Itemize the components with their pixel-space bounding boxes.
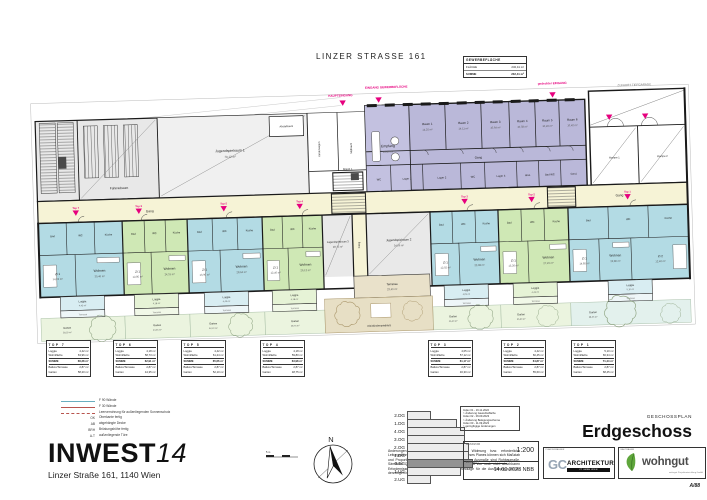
terrace-label: Terrasse [386,282,398,286]
svg-text:26,12 m²: 26,12 m² [300,268,310,272]
stair-label: Stiege 1 [343,167,353,171]
svg-text:12,02 m²: 12,02 m² [440,265,450,269]
dashed-line-icon [61,413,95,414]
svg-text:12,40 m²: 12,40 m² [270,270,280,274]
svg-text:23,98 m²: 23,98 m² [474,263,484,267]
svg-text:46,30 m²: 46,30 m² [449,320,458,323]
svg-text:WC: WC [152,231,157,235]
stair-flight [39,123,57,193]
top-table: TOP 4 Loggia4,18 m² Wohnfläche59,80 m² S… [260,340,305,377]
bike-rack [103,125,119,177]
gc-logo-text: GC [548,457,567,472]
scale-value: 1:200 [464,447,538,454]
svg-text:WC: WC [461,222,466,226]
svg-text:Zi 1: Zi 1 [511,258,516,262]
svg-text:Raum 5: Raum 5 [542,118,553,122]
svg-text:5,10 m²: 5,10 m² [627,288,635,291]
floor-title: Erdgeschoss [512,421,692,442]
svg-text:Küche: Küche [105,232,113,236]
svg-text:Top 1: Top 1 [624,189,631,193]
top-table: TOP 1 Loggia5,10 m² Wohnfläche66,34 m² S… [571,340,616,377]
svg-text:55,60 m²: 55,60 m² [517,318,526,321]
sandbox [371,303,391,318]
communal-block: Abstellraum Stiege 1 Fahrradraum Jugends… [35,112,367,202]
svg-text:44,35 m²: 44,35 m² [153,328,162,331]
svg-text:4,42 m²: 4,42 m² [532,291,540,294]
bike-rack [123,125,139,177]
client-logo: BAUTRÄGER wohngut wohngut Projektentwick… [618,447,706,479]
garage-ramp-block: Rampe 1 Rampe 2 [588,88,687,185]
top-table: TOP 2 Loggia4,42 m² Wohnfläche60,45 m² S… [501,340,546,377]
svg-text:Küche: Küche [309,226,317,230]
room-label: Müllraum [349,143,353,154]
svg-text:Bad: Bad [197,230,202,234]
stair-core [547,187,576,208]
svg-text:Top 3: Top 3 [461,194,468,198]
svg-text:Terrasse: Terrasse [223,309,232,312]
entrance-marker-icon [375,97,382,103]
svg-text:Terrasse: Terrasse [153,311,162,314]
svg-text:Top 2: Top 2 [528,192,535,196]
svg-text:28,73 m²: 28,73 m² [333,245,343,249]
svg-text:Garten: Garten [291,319,300,323]
svg-text:Abst.: Abst. [525,173,531,177]
svg-text:Gard.: Gard. [571,172,578,176]
svg-text:30,46 m²: 30,46 m² [95,274,105,278]
room-label: Empfang [381,144,395,148]
top-table: TOP 7 Loggia4,42 m² Wohnfläche63,96 m² S… [46,340,91,377]
svg-text:24,31 m²: 24,31 m² [164,272,174,276]
legend-item: ABabgehängte Decke [55,422,185,426]
svg-text:Raum 1: Raum 1 [422,122,433,126]
svg-text:12,85 m²: 12,85 m² [133,274,143,278]
svg-text:Lager 1: Lager 1 [402,176,411,180]
svg-text:WC: WC [471,175,476,179]
svg-text:13,90 m²: 13,90 m² [200,272,210,276]
commercial-block: Empfang 12,40 m² Raum 1 14,25 m² Raum 2 … [365,99,587,191]
svg-text:58,20 m²: 58,20 m² [63,331,72,334]
svg-text:WC: WC [222,229,227,233]
svg-text:Top 6: Top 6 [135,204,142,208]
svg-text:Garten: Garten [589,310,598,314]
entrance-marker-icon [339,100,346,106]
corridor-label: Gang [475,155,483,159]
svg-text:14,85 m²: 14,85 m² [579,261,589,265]
svg-text:4,42 m²: 4,42 m² [223,300,231,303]
svg-text:Raum 6: Raum 6 [567,117,578,121]
svg-text:Bad: Bad [507,220,512,224]
room-label: Fahrradraum [110,186,129,191]
svg-text:Bad: Bad [270,228,275,232]
wohngut-logo-text: wohngut [642,456,689,468]
svg-text:Garten: Garten [449,314,458,318]
entrance-label: EINGANG GEWERBEFLÄCHE [365,85,408,90]
svg-text:70,12 m²: 70,12 m² [224,155,236,159]
svg-text:Raum 3: Raum 3 [490,120,501,124]
svg-text:Lager 2: Lager 2 [437,175,446,179]
north-arrow-icon: N [314,435,352,483]
svg-text:68,45 m²: 68,45 m² [589,315,598,318]
project-logo: INWEST14 Linzer Straße 161, 1140 Wien [48,438,187,480]
stair-core [331,193,366,214]
bike-rack [83,126,99,178]
svg-text:Loggia: Loggia [78,299,86,303]
svg-text:Zi 1: Zi 1 [55,272,60,276]
svg-text:Rampe 2: Rampe 2 [657,154,668,158]
svg-text:Zi 1: Zi 1 [582,256,587,260]
svg-text:Wohnen: Wohnen [94,269,106,273]
svg-text:Garten: Garten [63,326,72,330]
svg-text:Bad: Bad [586,218,591,222]
svg-text:28,64 m²: 28,64 m² [236,270,246,274]
svg-text:Wohnen: Wohnen [609,253,621,257]
svg-text:Küche: Küche [664,216,672,220]
top-table: TOP 5 Loggia4,42 m² Wohnfläche61,24 m² S… [181,340,226,377]
leaf-icon [622,451,642,473]
svg-text:Wohnen: Wohnen [164,266,176,270]
room-label: Jugendspielraum 3 [327,239,350,244]
top-table: TOP 3 Loggia4,05 m² Wohnfläche57,12 m² S… [428,340,473,377]
ramp-label: ZUFAHRT TIEFGARAGE [617,82,651,87]
svg-text:Lager 3: Lager 3 [496,174,505,178]
svg-text:10,64 m²: 10,64 m² [490,125,500,129]
svg-text:N: N [328,435,333,444]
legend-item: F 30 Wände [55,405,185,409]
svg-text:10,49 m²: 10,49 m² [542,124,552,128]
svg-text:Terrasse: Terrasse [531,300,540,303]
svg-text:Zi 2: Zi 2 [658,254,663,258]
svg-text:14,11 m²: 14,11 m² [458,126,468,130]
svg-text:52,10 m²: 52,10 m² [209,327,218,330]
room-label: Jugendspielraum 2 [386,237,412,242]
svg-text:Zi 1: Zi 1 [443,260,448,264]
plan-sheet: LINZER STRASSE 161 GEWERBEFLÄCHE FLÄCHE2… [0,0,707,500]
svg-text:23,40 m²: 23,40 m² [387,287,397,291]
svg-text:Wohnen: Wohnen [236,264,248,268]
svg-text:Loggia: Loggia [531,286,539,290]
svg-text:4,18 m²: 4,18 m² [291,298,299,301]
svg-text:32,80 m²: 32,80 m² [610,259,620,263]
svg-text:4,05 m²: 4,05 m² [463,293,471,296]
svg-text:WC: WC [530,220,535,224]
svg-text:Wohnen: Wohnen [299,262,311,266]
svg-text:Rampe 1: Rampe 1 [609,155,620,159]
revision-block: Index 01 - 16.11.2022> Änderung Gewerbef… [460,406,520,431]
wall-line-teal-icon [61,401,95,402]
svg-text:Loggia: Loggia [626,283,634,287]
svg-text:Loggia: Loggia [222,295,230,299]
entrance-marker-icon [549,92,556,98]
plan-type-label: GESCHOSSPLAN [552,414,692,419]
entrance-label: HAUPTEINGANG [328,93,353,98]
svg-text:Bad: Bad [439,223,444,227]
svg-text:48,75 m²: 48,75 m² [291,324,300,327]
svg-text:10,42 m²: 10,42 m² [567,123,577,127]
room-label: Abstellraum [279,124,293,128]
svg-text:Wohnen: Wohnen [473,257,485,261]
playground-label: Kleinkinderspielplatz [367,323,391,328]
date-box: ERSTELLT 14.09.2023 NBB [463,460,539,480]
svg-text:Raum 4: Raum 4 [517,119,528,123]
svg-text:4,18 m²: 4,18 m² [153,302,161,305]
svg-text:34,96 m²: 34,96 m² [394,243,404,247]
svg-text:12,40 m²: 12,40 m² [383,149,393,153]
svg-text:14,02 m²: 14,02 m² [53,277,63,281]
svg-text:WC: WC [377,177,382,181]
svg-text:Garten: Garten [517,312,526,316]
svg-text:10,58 m²: 10,58 m² [517,124,527,128]
room-label: Kinderwagen [317,141,321,157]
date-value: 14.09.2023 NBB [464,467,538,473]
svg-text:Küche: Küche [246,228,254,232]
svg-text:Terrasse: Terrasse [462,302,471,305]
legend: F 90 Wände F 30 Wände Leerverrohrung für… [55,399,185,440]
scale-box: MASSSTAB 1:200 [463,441,539,462]
legend-item: Leerverrohrung für außenliegenden Sonnen… [55,411,185,415]
svg-text:Zi 1: Zi 1 [273,265,278,269]
project-name: INWEST [48,438,156,468]
legend-item: BRHBrüstungshöhe fertig [55,428,185,432]
corridor-label: Gang [616,193,624,197]
svg-text:Küche: Küche [173,230,181,234]
logo-row: PLANVERFASSER GC ARCHITEKTUR ZT GMBH WIE… [543,447,706,479]
svg-text:Wohnen: Wohnen [542,255,554,259]
svg-text:Raum 2: Raum 2 [458,121,469,125]
svg-text:Top 5: Top 5 [220,201,227,205]
svg-text:Top 4: Top 4 [296,199,303,203]
svg-text:Zi 1: Zi 1 [202,268,207,272]
wall-line-red-icon [61,407,95,408]
svg-text:Küche: Küche [553,219,561,223]
svg-text:WC: WC [290,227,295,231]
scale-bar: 5 m [266,450,298,457]
corridor-label: Gang [146,209,154,213]
top-table: TOP 6 Loggia4,18 m² Wohnfläche58,73 m² S… [113,340,158,377]
svg-text:WC: WC [78,233,83,237]
svg-text:14,25 m²: 14,25 m² [422,127,432,131]
svg-text:Bad: Bad [50,234,55,238]
svg-text:Loggia: Loggia [462,288,470,292]
svg-text:Bad: Bad [131,232,136,236]
svg-text:Bad WC: Bad WC [545,172,555,176]
svg-text:Küche: Küche [483,221,491,225]
svg-text:4,42 m²: 4,42 m² [79,304,87,307]
svg-text:Loggia: Loggia [290,293,298,297]
svg-text:WC: WC [626,217,631,221]
project-suffix: 14 [156,438,187,468]
svg-text:12,40 m²: 12,40 m² [655,259,665,263]
svg-text:5 m: 5 m [266,450,270,454]
architect-logo: PLANVERFASSER GC ARCHITEKTUR ZT GMBH WIE… [543,447,615,479]
svg-text:Garten: Garten [209,321,218,325]
svg-text:27,45 m²: 27,45 m² [543,261,553,265]
svg-text:Loggia: Loggia [152,297,160,301]
svg-text:Top 7: Top 7 [72,206,79,210]
legend-item: F 90 Wände [55,399,185,403]
svg-text:Zi 1: Zi 1 [135,270,140,274]
svg-text:Terrasse: Terrasse [291,307,300,310]
legend-item: OKOberkante fertig [55,416,185,420]
project-address: Linzer Straße 161, 1140 Wien [48,470,187,480]
svg-text:Garten: Garten [153,323,162,327]
plan-number: A/88 [655,483,700,489]
shaft [58,157,66,169]
svg-text:13,26 m²: 13,26 m² [508,263,518,267]
svg-text:Terrasse: Terrasse [79,313,88,316]
passage-label: Gang [357,241,361,248]
entrance-label: gedeckter EINGANG [538,81,568,86]
